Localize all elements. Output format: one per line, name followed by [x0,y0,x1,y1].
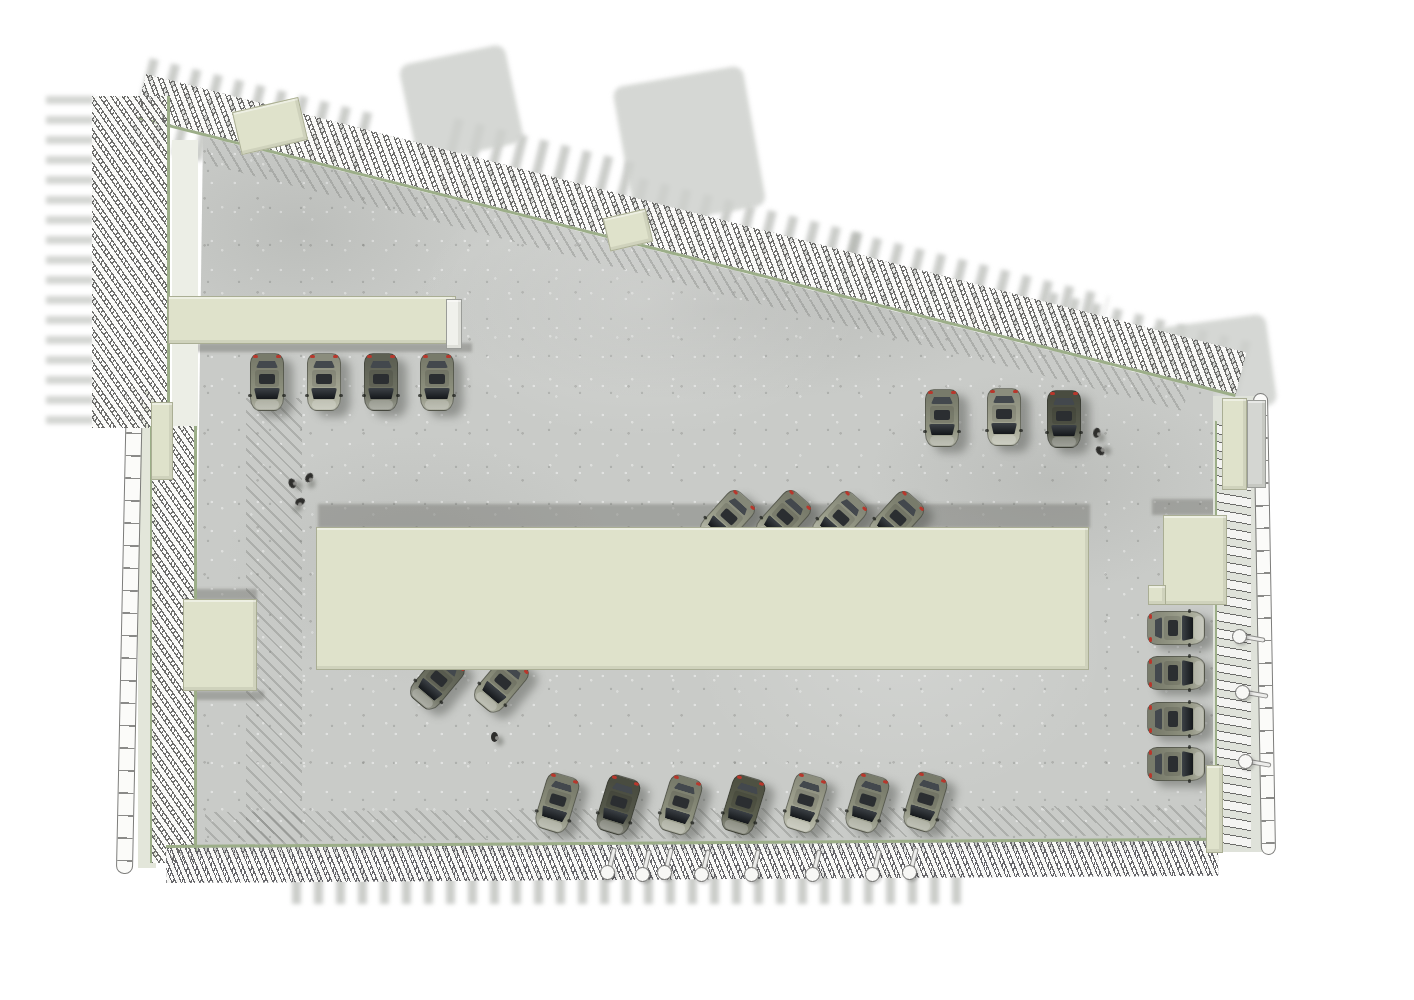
round-column [865,867,880,882]
round-column [694,867,709,882]
round-column [1238,754,1253,769]
round-column [744,867,759,882]
round-column [1235,685,1250,700]
round-column [657,865,672,880]
architectural-plan-scene [0,0,1414,1000]
round-column [635,867,650,882]
round-column [805,867,820,882]
round-column [1232,629,1247,644]
round-column [902,865,917,880]
round-column [600,865,615,880]
column-layer [0,0,1414,1000]
